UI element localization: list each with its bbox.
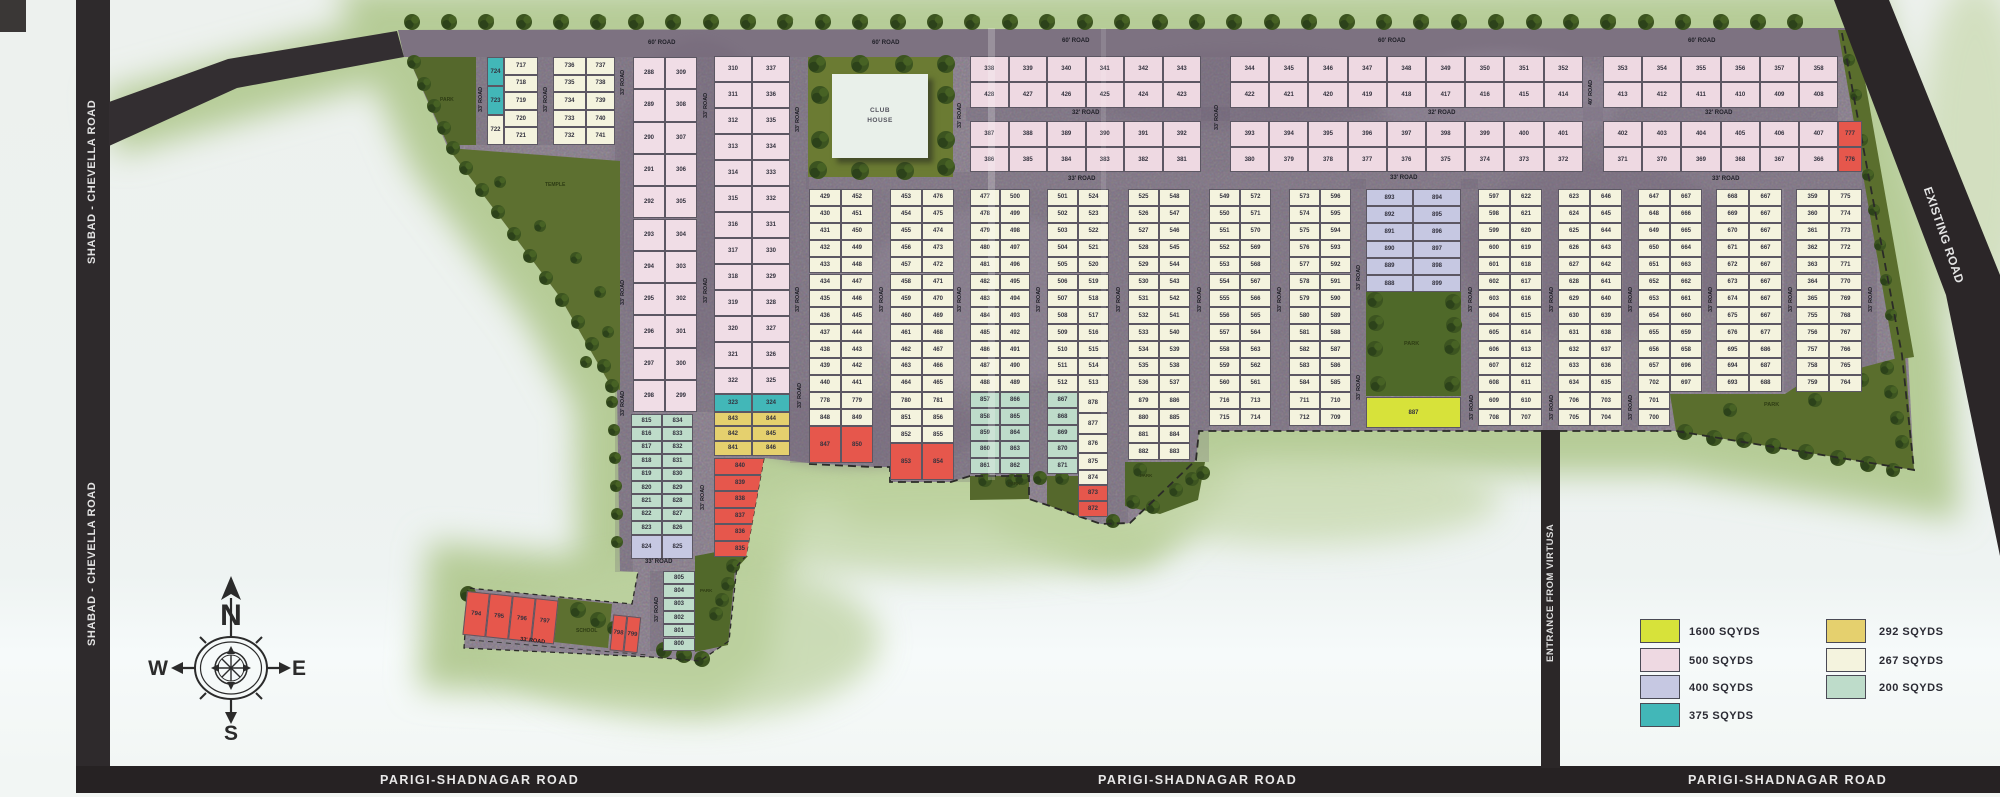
- svg-text:N: N: [220, 599, 242, 632]
- svg-text:E: E: [292, 657, 306, 680]
- svg-text:W: W: [148, 657, 168, 680]
- svg-text:S: S: [224, 722, 238, 745]
